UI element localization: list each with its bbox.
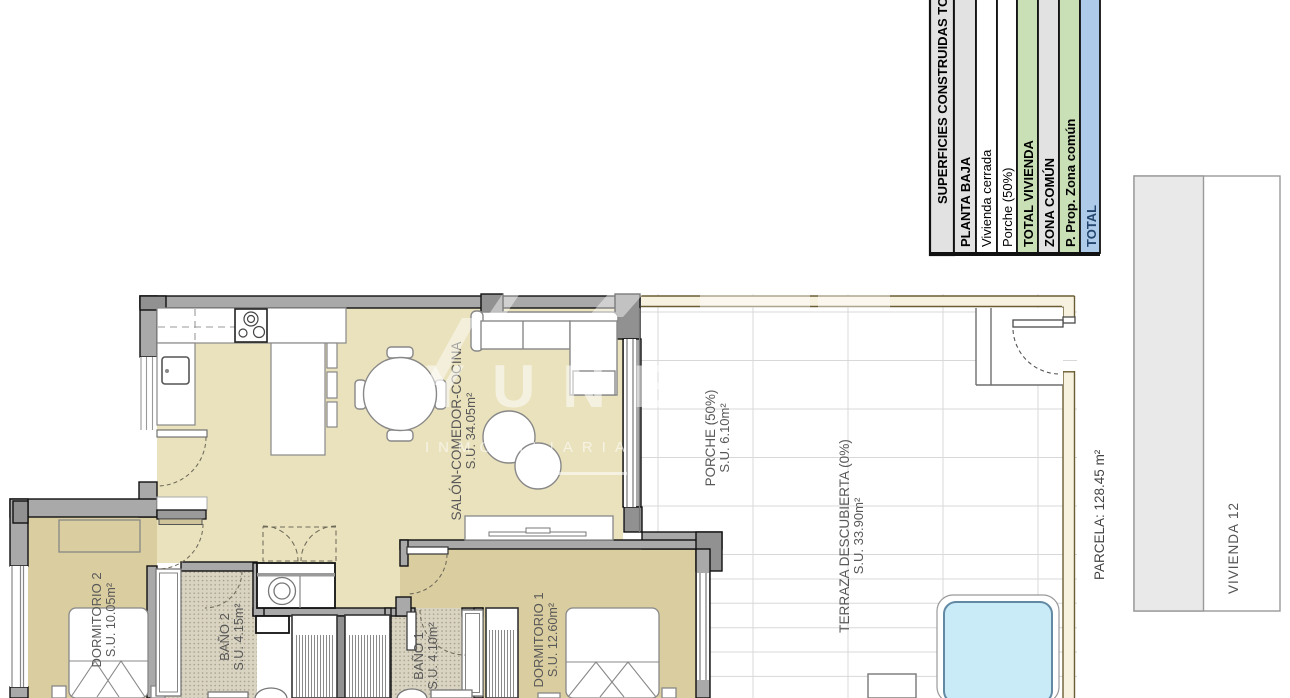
- svg-text:S.U. 4.15m²: S.U. 4.15m²: [232, 603, 246, 670]
- svg-text:S.U. 33.90m²: S.U. 33.90m²: [851, 497, 866, 574]
- svg-text:S.U. 4.10m²: S.U. 4.10m²: [426, 622, 440, 689]
- svg-text:PORCHE (50%): PORCHE (50%): [703, 390, 718, 487]
- svg-text:DORMITORIO 1: DORMITORIO 1: [531, 592, 546, 687]
- svg-text:DORMITORIO 2: DORMITORIO 2: [89, 572, 104, 667]
- svg-text:YUNE: YUNE: [425, 353, 700, 420]
- svg-text:BAÑO 2: BAÑO 2: [217, 613, 232, 661]
- svg-text:P. Prop. Zona común: P. Prop. Zona común: [1063, 119, 1078, 247]
- svg-text:INMOBILIARIA: INMOBILIARIA: [425, 439, 634, 456]
- svg-text:S.U. 10.05m²: S.U. 10.05m²: [104, 583, 118, 657]
- svg-text:SUPERFICIES CONSTRUIDAS TOTALE: SUPERFICIES CONSTRUIDAS TOTALES: [935, 0, 950, 204]
- svg-text:Porche (50%): Porche (50%): [1000, 168, 1015, 247]
- svg-text:PARCELA: 128.45 m²: PARCELA: 128.45 m²: [1092, 449, 1107, 580]
- svg-text:S.U. 12.60m²: S.U. 12.60m²: [546, 603, 560, 677]
- svg-text:VIVIENDA 12: VIVIENDA 12: [1226, 502, 1241, 594]
- svg-text:ZONA COMÚN: ZONA COMÚN: [1042, 158, 1057, 247]
- svg-text:S.U. 6.10m²: S.U. 6.10m²: [717, 403, 732, 473]
- svg-text:TOTAL VIVIENDA: TOTAL VIVIENDA: [1021, 139, 1036, 247]
- svg-text:BAÑO 1: BAÑO 1: [411, 632, 426, 680]
- svg-text:Vivienda cerrada: Vivienda cerrada: [979, 149, 994, 247]
- svg-text:TERRAZA DESCUBIERTA (0%): TERRAZA DESCUBIERTA (0%): [837, 439, 852, 633]
- svg-text:PLANTA BAJA: PLANTA BAJA: [958, 156, 973, 247]
- svg-text:TOTAL: TOTAL: [1084, 205, 1099, 247]
